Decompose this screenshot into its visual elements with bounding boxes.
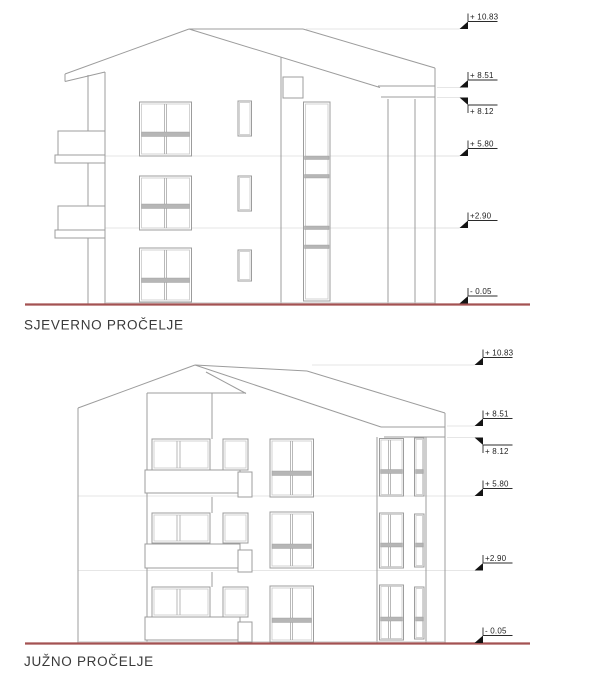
- south-balcony-step-floor2: [238, 550, 252, 572]
- marker-label: + 8.51: [485, 410, 509, 419]
- elevation-marker-flipped: + 8.12: [475, 438, 513, 457]
- south-balcony-step-floor3: [238, 472, 252, 497]
- north-elevation-markers: + 10.83 + 8.51 + 8.12 + 5.80: [460, 13, 499, 304]
- south-strip2-floor3: [415, 438, 425, 496]
- south-strip2-floor1: [415, 587, 425, 639]
- elevation-marker: - 0.05: [460, 287, 498, 304]
- elevation-marker: + 10.83: [460, 13, 499, 30]
- south-strip1-floor2: [380, 513, 404, 568]
- south-elevation-title: JUŽNO PROČELJE: [24, 654, 154, 669]
- marker-label: + 8.12: [470, 107, 494, 116]
- north-elevation-title: SJEVERNO PROČELJE: [24, 318, 184, 333]
- south-windows-single: [223, 439, 248, 617]
- north-stair-glazing-strip: [304, 102, 331, 301]
- north-roof: [65, 29, 435, 97]
- north-window-large-floor1: [140, 248, 192, 302]
- north-balcony-upper-railing: [58, 131, 105, 155]
- marker-label: + 10.83: [485, 349, 514, 358]
- north-balconies: [55, 131, 105, 238]
- window-band: [142, 204, 190, 209]
- north-elevation-drawing: + 10.83 + 8.51 + 8.12 + 5.80: [24, 13, 530, 333]
- architectural-elevation-sheet: + 10.83 + 8.51 + 8.12 + 5.80: [0, 0, 615, 690]
- north-balcony-lower-railing: [58, 206, 105, 230]
- north-window-large-floor2: [140, 176, 192, 230]
- window-band: [142, 132, 190, 137]
- south-strip1-floor3: [380, 439, 404, 497]
- window-band: [272, 544, 312, 549]
- south-elevation-drawing: + 10.83 + 8.51 + 8.12 + 5.80: [24, 349, 530, 670]
- elevation-marker: - 0.05: [475, 627, 513, 644]
- window-band: [272, 618, 312, 623]
- south-balcony-door-floor3: [152, 439, 210, 470]
- elevation-marker: + 8.51: [475, 410, 513, 427]
- marker-label: - 0.05: [485, 627, 507, 636]
- marker-label: + 8.12: [485, 447, 509, 456]
- south-window-large-floor1: [270, 586, 314, 642]
- south-roof: [78, 365, 445, 437]
- south-balcony-slab-floor1: [145, 617, 240, 640]
- elevation-marker: +2.90: [460, 212, 498, 229]
- south-balcony-slab-floor3: [145, 470, 240, 493]
- north-roof-pier: [283, 77, 303, 98]
- marker-label: +2.90: [485, 554, 507, 563]
- south-balcony-door-floor2: [152, 513, 210, 543]
- elevation-marker: + 5.80: [460, 140, 498, 157]
- south-balcony-step-floor1: [238, 622, 252, 642]
- marker-label: + 10.83: [470, 13, 499, 22]
- south-window-large-floor3: [270, 439, 314, 497]
- marker-label: - 0.05: [470, 287, 492, 296]
- window-band: [142, 278, 190, 283]
- south-strip1-floor1: [380, 585, 404, 640]
- south-strip2-floor2: [415, 514, 425, 567]
- elevation-marker: + 8.51: [460, 71, 498, 88]
- south-strip-windows: [380, 438, 425, 640]
- south-elevation-markers: + 10.83 + 8.51 + 8.12 + 5.80: [475, 349, 514, 644]
- marker-label: + 5.80: [485, 480, 509, 489]
- south-balcony-door-floor1: [152, 587, 210, 617]
- elevation-drawings-canvas: + 10.83 + 8.51 + 8.12 + 5.80: [0, 0, 615, 690]
- south-balcony-doors: [152, 439, 210, 617]
- north-balcony-upper-slab: [55, 155, 105, 163]
- elevation-marker: + 10.83: [475, 349, 514, 366]
- window-band: [272, 471, 312, 476]
- elevation-marker: +2.90: [475, 554, 513, 571]
- marker-label: + 8.51: [470, 71, 494, 80]
- elevation-marker: + 5.80: [475, 480, 513, 497]
- marker-label: +2.90: [470, 212, 492, 221]
- north-windows-narrow: [238, 101, 252, 281]
- south-balcony-slab-floor2: [145, 544, 240, 568]
- south-window-large-floor2: [270, 512, 314, 568]
- elevation-marker-flipped: + 8.12: [460, 98, 498, 117]
- marker-label: + 5.80: [470, 140, 494, 149]
- north-balcony-lower-slab: [55, 230, 105, 238]
- north-window-large-floor3: [140, 102, 192, 156]
